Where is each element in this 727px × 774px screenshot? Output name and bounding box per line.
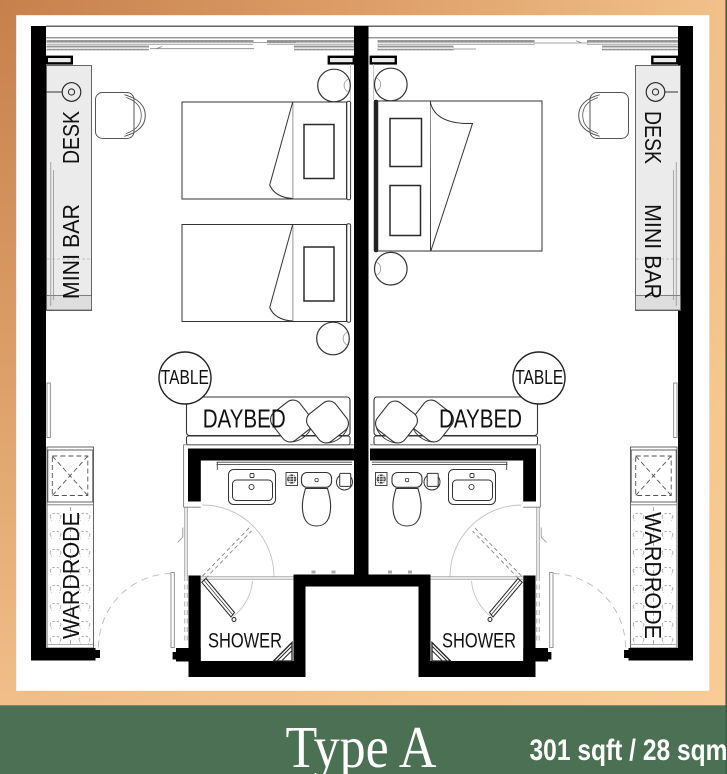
- svg-text:DESK: DESK: [640, 111, 666, 164]
- svg-text:Type A: Type A: [286, 714, 437, 774]
- svg-text:TABLE: TABLE: [161, 366, 209, 389]
- svg-text:SHOWER: SHOWER: [442, 630, 516, 653]
- svg-text:SHOWER: SHOWER: [208, 630, 282, 653]
- svg-text:MINI BAR: MINI BAR: [58, 204, 84, 299]
- svg-text:DESK: DESK: [58, 111, 84, 164]
- svg-text:301 sqft / 28 sqm: 301 sqft / 28 sqm: [530, 734, 727, 767]
- svg-text:MINI BAR: MINI BAR: [640, 204, 666, 299]
- svg-text:DAYBED: DAYBED: [439, 404, 522, 434]
- svg-text:WARDRODE: WARDRODE: [58, 512, 84, 639]
- svg-text:DAYBED: DAYBED: [203, 404, 286, 434]
- svg-text:TABLE: TABLE: [515, 366, 563, 389]
- svg-text:WARDRODE: WARDRODE: [640, 512, 666, 639]
